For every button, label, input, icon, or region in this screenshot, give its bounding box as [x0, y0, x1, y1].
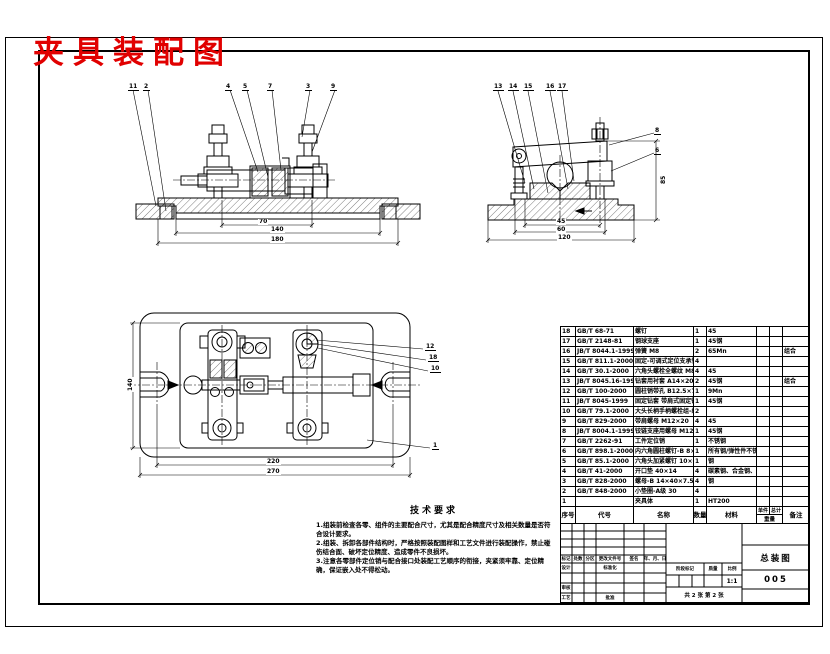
- bom-cell-seq: 9: [561, 417, 576, 427]
- page-title: 夹具装配图: [33, 34, 233, 72]
- bom-cell-seq: 13: [561, 377, 576, 387]
- revision-col-zone: 分区: [584, 555, 596, 563]
- bom-cell-total: [770, 497, 783, 507]
- bom-cell-unit: [757, 347, 770, 357]
- bom-cell-name: 钻套用衬套 A14×20: [634, 377, 694, 387]
- bom-cell-name: 螺母-B 14×40×7.5×14.5: [634, 477, 694, 487]
- bom-table: 18GB/T 68-71螺钉14517GB/T 2148-81钢球支座145钢1…: [560, 326, 810, 524]
- drawing-name: 总装图: [742, 545, 810, 570]
- bom-cell-material: 所有钢/弹性件不锈钢: [707, 447, 757, 457]
- tech-requirement-item: 3.注意各零部件定位销与配合接口处装配工艺顺序的衔接，夹紧须牢靠、定位精确，保证…: [316, 557, 552, 575]
- bom-row: 1夹具体1HT200: [561, 497, 810, 507]
- bom-cell-seq: 14: [561, 367, 576, 377]
- side-view-drawing: [468, 83, 683, 248]
- bom-cell-qty: 4: [694, 357, 707, 367]
- revision-col-signature: 签名: [624, 555, 644, 563]
- bom-cell-unit: [757, 417, 770, 427]
- bom-cell-unit: [757, 477, 770, 487]
- drawing-sheet: 夹具装配图: [0, 0, 830, 654]
- bom-cell-code: GB/T 898.1-2000: [576, 447, 634, 457]
- bom-cell-material: 钢: [707, 457, 757, 467]
- scale-value: 1:1: [722, 575, 742, 587]
- bom-cell-total: [770, 377, 783, 387]
- bom-cell-qty: 1: [694, 447, 707, 457]
- bom-cell-name: 圆柱销带孔 B12.5×70: [634, 387, 694, 397]
- bom-cell-qty: 4: [694, 487, 707, 497]
- bom-cell-total: [770, 347, 783, 357]
- bom-cell-remark: [783, 437, 810, 447]
- bom-row: 14GB/T 30.1-2000六角头螺栓全螺纹 M8×35445: [561, 367, 810, 377]
- bom-cell-material: [707, 487, 757, 497]
- bom-cell-total: [770, 437, 783, 447]
- bom-row: 12GB/T 100-2000圆柱销带孔 B12.5×7019Mn: [561, 387, 810, 397]
- bom-cell-unit: [757, 377, 770, 387]
- bom-cell-remark: [783, 417, 810, 427]
- bom-cell-total: [770, 457, 783, 467]
- bom-cell-remark: [783, 337, 810, 347]
- bom-row: 16JB/T 8044.1-1999弹簧 M8265Mn组合: [561, 347, 810, 357]
- bom-cell-qty: 1: [694, 457, 707, 467]
- bom-cell-code: GB/T 829-2000: [576, 417, 634, 427]
- bom-cell-material: 45钢: [707, 377, 757, 387]
- bom-cell-qty: 1: [694, 327, 707, 337]
- bom-cell-unit: [757, 427, 770, 437]
- bom-cell-name: 固定-可调式定位支承钉 B6×30: [634, 357, 694, 367]
- bom-cell-unit: [757, 487, 770, 497]
- bom-cell-total: [770, 427, 783, 437]
- v-block-left: [530, 183, 560, 199]
- bom-cell-unit: [757, 397, 770, 407]
- bom-row: 9GB/T 829-2000带肩螺母 M12×20445: [561, 417, 810, 427]
- check-label: 审核: [560, 583, 572, 593]
- revision-col-docno: 更改文件号: [596, 555, 624, 563]
- bom-cell-unit: [757, 357, 770, 367]
- revision-col-mark: 标记: [560, 555, 572, 563]
- bom-cell-unit: [757, 387, 770, 397]
- bom-cell-qty: 4: [694, 467, 707, 477]
- bom-cell-total: [770, 477, 783, 487]
- bom-cell-total: [770, 407, 783, 417]
- bom-cell-name: 六角头螺栓全螺纹 M8×35: [634, 367, 694, 377]
- section-arrow-left: [168, 381, 178, 389]
- base-plate-section: [158, 198, 398, 213]
- bom-cell-remark: [783, 467, 810, 477]
- bom-cell-code: GB/T 30.1-2000: [576, 367, 634, 377]
- bom-cell-material: 碳素钢、合金钢、不锈钢: [707, 467, 757, 477]
- bom-cell-qty: 4: [694, 367, 707, 377]
- weight-value: [704, 575, 722, 587]
- bom-cell-material: 65Mn: [707, 347, 757, 357]
- bom-row: 8JB/T 8004.1-1999铰链支座用螺母 M12145钢: [561, 427, 810, 437]
- bom-cell-qty: 1: [694, 437, 707, 447]
- front-view-drawing: [118, 80, 438, 255]
- bom-cell-code: GB/T 85.1-2000: [576, 457, 634, 467]
- bom-cell-seq: 4: [561, 467, 576, 477]
- bom-cell-seq: 18: [561, 327, 576, 337]
- title-block: 标记 处数 分区 更改文件号 签名 年、月、日 设计 标准化 审核 工艺 批准 …: [560, 523, 810, 603]
- bom-cell-seq: 16: [561, 347, 576, 357]
- leader-lines: [498, 91, 654, 193]
- bom-cell-code: GB/T 68-71: [576, 327, 634, 337]
- bom-header-code: 代号: [576, 507, 634, 524]
- bom-cell-unit: [757, 437, 770, 447]
- bom-cell-remark: 组合: [783, 347, 810, 357]
- bom-cell-unit: [757, 407, 770, 417]
- bom-cell-remark: [783, 387, 810, 397]
- bom-cell-material: 不锈钢: [707, 437, 757, 447]
- bom-row: 13JB/T 8045.16-1999钻套用衬套 A14×20245钢组合: [561, 377, 810, 387]
- bom-cell-code: GB/T 848-2000: [576, 487, 634, 497]
- bom-cell-qty: 2: [694, 407, 707, 417]
- bom-header-name: 名称: [634, 507, 694, 524]
- bom-row: 6GB/T 898.1-2000内六角圆柱螺钉-B 8×16-B1所有钢/弹性件…: [561, 447, 810, 457]
- bom-cell-material: HT200: [707, 497, 757, 507]
- drawing-number: 005: [742, 570, 810, 589]
- bom-cell-material: 45: [707, 327, 757, 337]
- bom-row: 7GB/T 2262-91工件定位销1不锈钢: [561, 437, 810, 447]
- bom-cell-name: 弹簧 M8: [634, 347, 694, 357]
- bom-cell-material: 45钢: [707, 427, 757, 437]
- base-plate-inner: [180, 323, 373, 448]
- bom-cell-code: JB/T 8045-1999: [576, 397, 634, 407]
- scale-label: 比例: [722, 563, 742, 575]
- bom-row: 10GB/T 79.1-2000大头长柄手柄螺栓组-组 B8×L2: [561, 407, 810, 417]
- bom-cell-remark: [783, 487, 810, 497]
- bom-row: 11JB/T 8045-1999固定钻套 带肩式固定钻套145钢: [561, 397, 810, 407]
- bom-cell-unit: [757, 457, 770, 467]
- bom-cell-qty: 1: [694, 337, 707, 347]
- bom-cell-qty: 1: [694, 427, 707, 437]
- bom-cell-remark: [783, 497, 810, 507]
- bom-cell-remark: [783, 367, 810, 377]
- standardization-label: 标准化: [596, 563, 624, 573]
- bom-cell-name: 内六角圆柱螺钉-B 8×16-B: [634, 447, 694, 457]
- bom-cell-total: [770, 367, 783, 377]
- bom-cell-code: GB/T 79.1-2000: [576, 407, 634, 417]
- bom-cell-seq: 15: [561, 357, 576, 367]
- plan-view-drawing: [120, 300, 440, 485]
- revision-col-date: 年、月、日: [644, 555, 666, 563]
- bom-cell-seq: 3: [561, 477, 576, 487]
- bom-cell-remark: 组合: [783, 377, 810, 387]
- bom-cell-material: 45钢: [707, 337, 757, 347]
- stage-mark-label: 阶段标记: [666, 563, 704, 575]
- bom-rows: 18GB/T 68-71螺钉14517GB/T 2148-81钢球支座145钢1…: [561, 327, 810, 507]
- bom-row: 4GB/T 41-2000开口垫 40×144碳素钢、合金钢、不锈钢: [561, 467, 810, 477]
- bom-header-unit: 单件: [757, 507, 770, 515]
- bom-cell-material: 45: [707, 417, 757, 427]
- bom-cell-total: [770, 487, 783, 497]
- bom-cell-total: [770, 397, 783, 407]
- bom-cell-seq: 10: [561, 407, 576, 417]
- bom-cell-name: 工件定位销: [634, 437, 694, 447]
- bom-cell-seq: 1: [561, 497, 576, 507]
- bom-cell-qty: 1: [694, 387, 707, 397]
- approve-label: 批准: [596, 593, 624, 603]
- bom-cell-seq: 5: [561, 457, 576, 467]
- bom-cell-name: 夹具体: [634, 497, 694, 507]
- tech-requirement-item: 2.组装、拆卸各部件结构时，严格按照装配图样和工艺文件进行装配操作，禁止碰伤结合…: [316, 539, 552, 557]
- bom-cell-seq: 6: [561, 447, 576, 457]
- bom-cell-total: [770, 467, 783, 477]
- bom-cell-unit: [757, 497, 770, 507]
- tech-requirement-item: 1.组装前检查各零、组件的主要配合尺寸，尤其是配合精度尺寸及相关数量是否符合设计…: [316, 521, 552, 539]
- bom-header-seq: 序号: [561, 507, 576, 524]
- bom-cell-code: JB/T 8045.16-1999: [576, 377, 634, 387]
- bom-cell-name: 六角头加紧螺钉 10×60: [634, 457, 694, 467]
- bom-cell-code: JB/T 8004.1-1999: [576, 427, 634, 437]
- bom-cell-material: 45钢: [707, 397, 757, 407]
- weight-label: 质量: [704, 563, 722, 575]
- bom-cell-qty: 2: [694, 377, 707, 387]
- bom-cell-name: 开口垫 40×14: [634, 467, 694, 477]
- bom-cell-total: [770, 327, 783, 337]
- bom-cell-total: [770, 337, 783, 347]
- hinge-post: [515, 167, 523, 193]
- bom-cell-qty: 4: [694, 417, 707, 427]
- bom-header-qty: 数量: [694, 507, 707, 524]
- bom-cell-material: [707, 407, 757, 417]
- bom-cell-code: [576, 497, 634, 507]
- bom-cell-material: 钢: [707, 477, 757, 487]
- bom-cell-name: 大头长柄手柄螺栓组-组 B8×L: [634, 407, 694, 417]
- leader-lines: [133, 90, 335, 211]
- bom-cell-code: GB/T 2148-81: [576, 337, 634, 347]
- bom-row: 2GB/T 848-2000小垫圈-A级 304: [561, 487, 810, 497]
- bom-cell-code: JB/T 8044.1-1999: [576, 347, 634, 357]
- bom-cell-remark: [783, 457, 810, 467]
- revision-col-count: 处数: [572, 555, 584, 563]
- design-label: 设计: [560, 563, 572, 573]
- bom-cell-unit: [757, 367, 770, 377]
- bom-cell-qty: 2: [694, 347, 707, 357]
- bom-cell-total: [770, 447, 783, 457]
- sheet-info: 共 2 张 第 2 张: [666, 587, 742, 603]
- bom-cell-material: 45: [707, 367, 757, 377]
- tech-requirements-heading: 技术要求: [316, 503, 552, 516]
- clamp-screw-right: [288, 125, 328, 198]
- bom-cell-qty: 4: [694, 477, 707, 487]
- bom-header-remark: 备注: [783, 507, 810, 524]
- bom-cell-seq: 2: [561, 487, 576, 497]
- bom-header-material: 材料: [707, 507, 757, 524]
- bom-row: 3GB/T 828-2000螺母-B 14×40×7.5×14.54钢: [561, 477, 810, 487]
- bom-cell-code: GB/T 2262-91: [576, 437, 634, 447]
- bom-cell-qty: 1: [694, 497, 707, 507]
- base-section: [488, 199, 634, 220]
- bom-cell-code: GB/T 828-2000: [576, 477, 634, 487]
- bom-cell-name: 螺钉: [634, 327, 694, 337]
- bom-cell-remark: [783, 407, 810, 417]
- bom-header-row: 序号 代号 名称 数量 材料 单件 总计 重量 备注: [561, 507, 810, 524]
- bom-row: 5GB/T 85.1-2000六角头加紧螺钉 10×601钢: [561, 457, 810, 467]
- bom-cell-code: GB/T 811.1-2000: [576, 357, 634, 367]
- bom-cell-material: 9Mn: [707, 387, 757, 397]
- bom-cell-unit: [757, 447, 770, 457]
- bom-row: 17GB/T 2148-81钢球支座145钢: [561, 337, 810, 347]
- bom-cell-total: [770, 417, 783, 427]
- bom-cell-qty: 1: [694, 397, 707, 407]
- bom-header-total: 总计: [770, 507, 782, 515]
- hinge-pin: [512, 149, 526, 163]
- bom-cell-remark: [783, 327, 810, 337]
- bom-cell-remark: [783, 477, 810, 487]
- bom-row: 18GB/T 68-71螺钉145: [561, 327, 810, 337]
- bom-cell-remark: [783, 427, 810, 437]
- process-label: 工艺: [560, 593, 572, 603]
- drill-plate-column: [250, 158, 290, 198]
- bom-cell-code: GB/T 41-2000: [576, 467, 634, 477]
- clamp-screw-left: [198, 125, 238, 198]
- bom-cell-total: [770, 387, 783, 397]
- bom-header-weight-group: 单件 总计 重量: [757, 507, 783, 524]
- bom-cell-remark: [783, 447, 810, 457]
- bom-cell-seq: 17: [561, 337, 576, 347]
- bom-cell-unit: [757, 467, 770, 477]
- bom-cell-name: 铰链支座用螺母 M12: [634, 427, 694, 437]
- bom-cell-total: [770, 357, 783, 367]
- bom-cell-seq: 8: [561, 427, 576, 437]
- bom-cell-name: 小垫圈-A级 30: [634, 487, 694, 497]
- bom-cell-seq: 11: [561, 397, 576, 407]
- bom-cell-name: 带肩螺母 M12×20: [634, 417, 694, 427]
- bom-cell-unit: [757, 337, 770, 347]
- bom-cell-code: GB/T 100-2000: [576, 387, 634, 397]
- bom-header-weight: 重量: [757, 515, 782, 523]
- bom-cell-unit: [757, 327, 770, 337]
- v-block-right: [560, 183, 590, 199]
- bom-cell-name: 钢球支座: [634, 337, 694, 347]
- bom-cell-seq: 12: [561, 387, 576, 397]
- bom-cell-seq: 7: [561, 437, 576, 447]
- bom-cell-material: [707, 357, 757, 367]
- bom-cell-remark: [783, 357, 810, 367]
- bom-cell-remark: [783, 397, 810, 407]
- bom-row: 15GB/T 811.1-2000固定-可调式定位支承钉 B6×304: [561, 357, 810, 367]
- bom-cell-name: 固定钻套 带肩式固定钻套: [634, 397, 694, 407]
- technical-requirements: 技术要求 1.组装前检查各零、组件的主要配合尺寸，尤其是配合精度尺寸及相关数量是…: [316, 503, 552, 575]
